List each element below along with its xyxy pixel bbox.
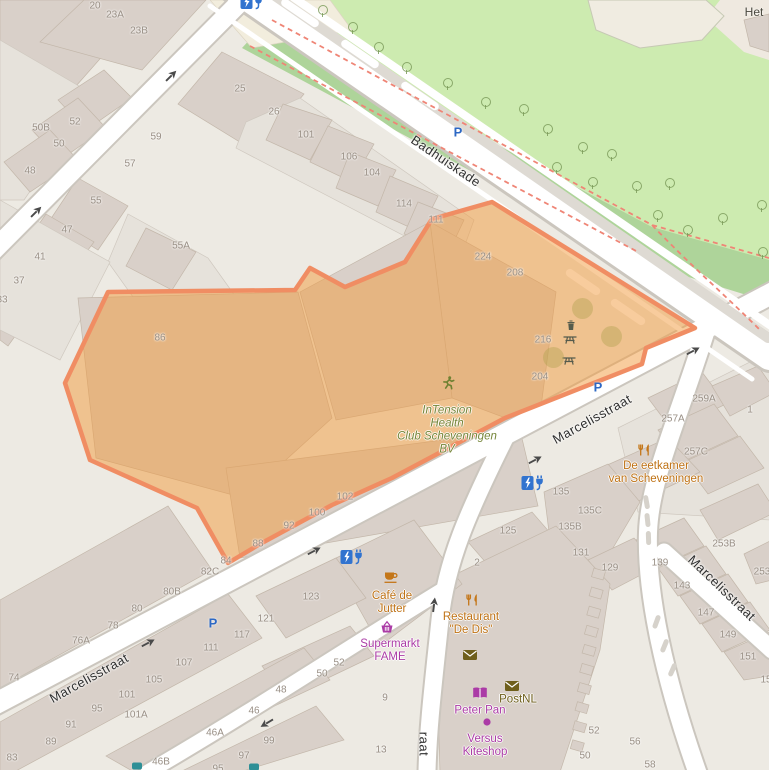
map-canvas[interactable]: 2023A23B25265250B504859575555A4741373386… <box>0 0 769 770</box>
basemap-render <box>0 0 769 770</box>
